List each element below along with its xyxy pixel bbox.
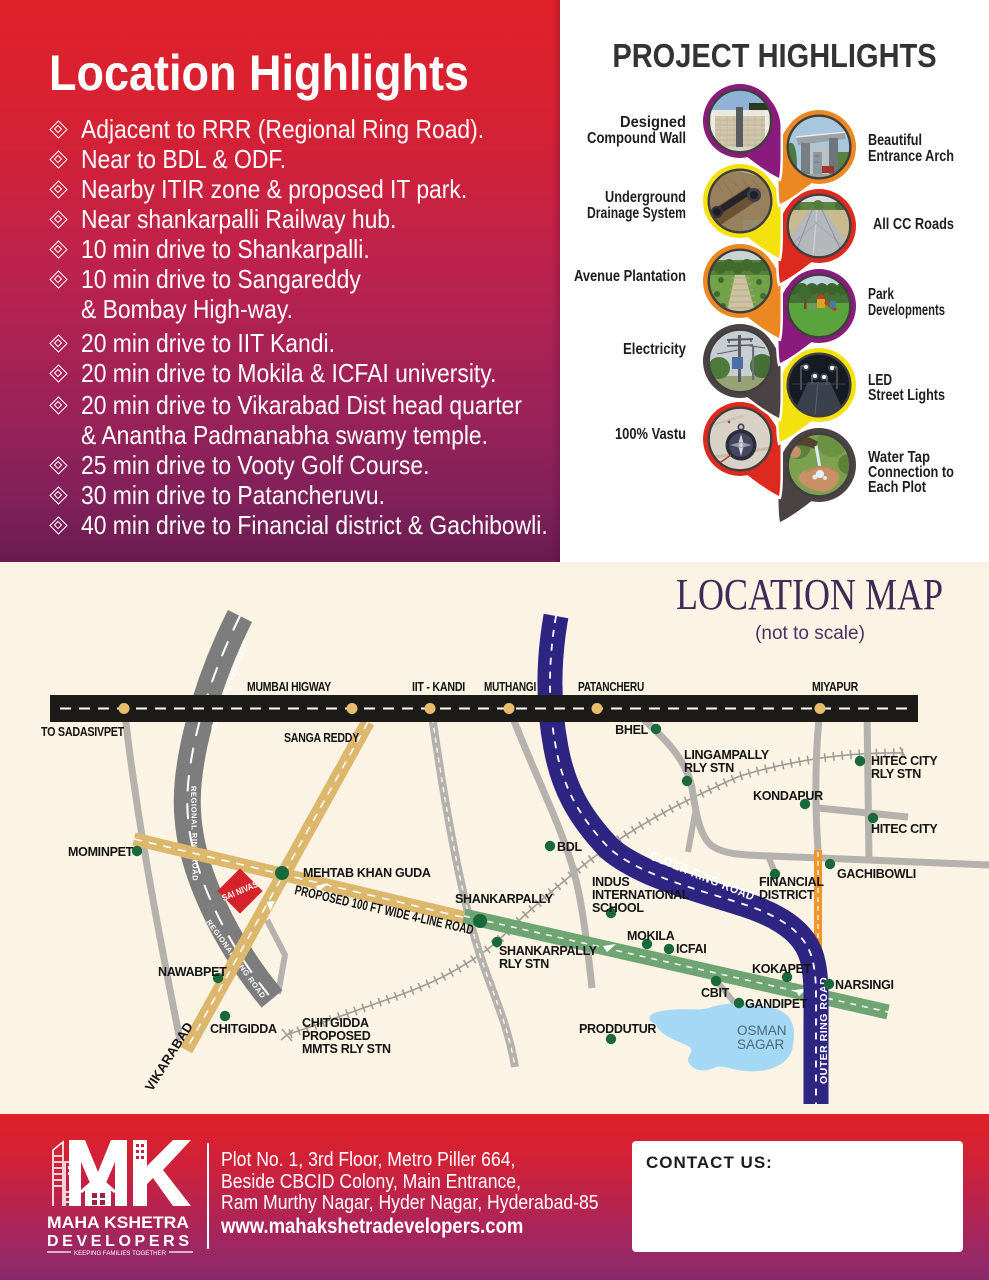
svg-text:MEHTAB KHAN GUDA: MEHTAB KHAN GUDA [303,866,431,880]
svg-text:Entrance Arch: Entrance Arch [868,148,954,165]
svg-text:RLY STN: RLY STN [871,767,921,781]
svg-text:MAHA KSHETRA: MAHA KSHETRA [47,1213,189,1232]
svg-text:INTERNATIONAL: INTERNATIONAL [592,888,690,902]
svg-text:MIYAPUR: MIYAPUR [812,680,858,694]
svg-text:PATANCHERU: PATANCHERU [578,680,644,694]
svg-text:CHITGIDDA: CHITGIDDA [210,1022,277,1036]
svg-text:CHITGIDDA: CHITGIDDA [302,1016,369,1030]
svg-text:MOMINPET: MOMINPET [68,845,134,859]
svg-text:RLY STN: RLY STN [499,957,549,971]
svg-text:OUTER RING ROAD: OUTER RING ROAD [818,977,830,1084]
svg-text:CBIT: CBIT [701,986,730,1000]
svg-text:DISTRICT: DISTRICT [759,888,815,902]
svg-text:GACHIBOWLI: GACHIBOWLI [837,867,916,881]
svg-text:RLY STN: RLY STN [684,761,734,775]
svg-text:OSMAN: OSMAN [737,1023,787,1038]
svg-text:HITEC CITY: HITEC CITY [871,822,938,836]
svg-text:Compound Wall: Compound Wall [587,130,686,147]
svg-text:Avenue Plantation: Avenue Plantation [574,268,686,285]
svg-text:SAGAR: SAGAR [737,1037,785,1052]
svg-text:INDUS: INDUS [592,875,629,889]
svg-text:KONDAPUR: KONDAPUR [753,789,823,803]
svg-text:FINANCIAL: FINANCIAL [759,875,824,889]
svg-text:KEEPING FAMILIES TOGETHER: KEEPING FAMILIES TOGETHER [74,1250,167,1257]
svg-text:MMTS RLY STN: MMTS RLY STN [302,1042,391,1056]
svg-text:100% Vastu: 100% Vastu [615,426,686,443]
svg-text:MUMBAI HIGWAY: MUMBAI HIGWAY [247,680,332,694]
svg-text:Underground: Underground [605,189,686,206]
svg-text:REGIONAL RING ROAD: REGIONAL RING ROAD [189,786,200,881]
svg-text:MOKILA: MOKILA [627,929,675,943]
svg-text:SHANKARPALLY: SHANKARPALLY [499,944,598,958]
svg-text:DEVELOPERS: DEVELOPERS [47,1233,189,1250]
svg-text:Designed: Designed [620,114,686,131]
svg-text:SANGA REDDY: SANGA REDDY [284,731,360,745]
svg-text:PROPOSED: PROPOSED [302,1029,371,1043]
svg-text:Street Lights: Street Lights [868,387,945,404]
svg-text:Park: Park [868,286,894,303]
svg-text:ICFAI: ICFAI [676,942,706,956]
svg-text:Electricity: Electricity [623,341,686,358]
svg-text:BHEL: BHEL [615,723,648,737]
svg-text:(not to scale): (not to scale) [755,623,865,644]
svg-text:PRODDUTUR: PRODDUTUR [579,1022,656,1036]
svg-text:LINGAMPALLY: LINGAMPALLY [684,748,770,762]
svg-text:MUTHANGI: MUTHANGI [484,680,536,694]
svg-text:SCHOOL: SCHOOL [592,901,644,915]
svg-text:Each Plot: Each Plot [868,479,926,496]
svg-text:All CC Roads: All CC Roads [873,216,954,233]
svg-text:GANDIPET: GANDIPET [745,997,808,1011]
svg-text:TO SADASIVPET: TO SADASIVPET [41,725,125,739]
svg-text:Beautiful: Beautiful [868,132,922,149]
svg-text:IIT - KANDI: IIT - KANDI [412,680,465,694]
svg-text:NAWABPET: NAWABPET [158,965,227,979]
svg-text:NARSINGI: NARSINGI [835,978,894,992]
svg-text:HITEC CITY: HITEC CITY [871,754,938,768]
svg-text:Drainage System: Drainage System [587,205,686,222]
svg-text:Developments: Developments [868,302,945,319]
svg-text:LOCATION MAP: LOCATION MAP [676,570,943,619]
svg-text:BDL: BDL [557,840,582,854]
svg-text:SHANKARPALLY: SHANKARPALLY [455,892,554,906]
svg-text:KOKAPET: KOKAPET [752,962,812,976]
